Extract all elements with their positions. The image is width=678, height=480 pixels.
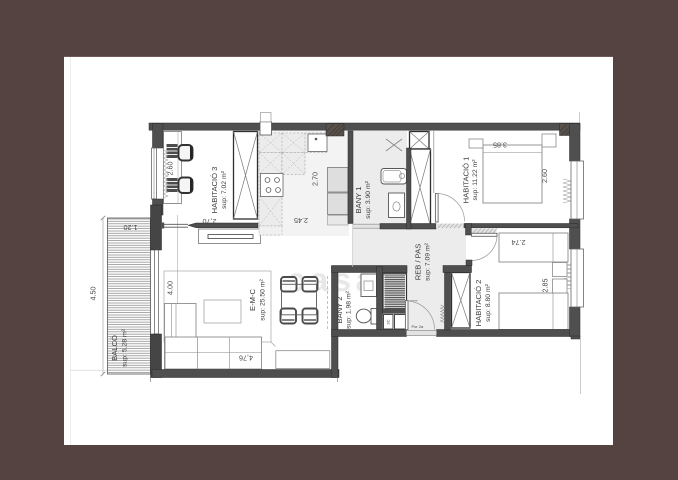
svg-text:1.20: 1.20 — [124, 223, 138, 232]
svg-text:HABITACIÓ 1: HABITACIÓ 1 — [462, 157, 471, 204]
svg-text:2.60: 2.60 — [540, 169, 549, 183]
svg-text:sup: 5.28 m²: sup: 5.28 m² — [122, 328, 129, 367]
svg-text:HABITACIÓ 2: HABITACIÓ 2 — [474, 280, 483, 327]
svg-text:REB / PAS: REB / PAS — [414, 244, 423, 281]
svg-text:E-M-C: E-M-C — [248, 289, 257, 311]
svg-text:sup: 7.02 m²: sup: 7.02 m² — [221, 170, 228, 209]
svg-text:sup: 7.09 m²: sup: 7.09 m² — [425, 242, 432, 281]
svg-text:4.00: 4.00 — [166, 281, 175, 295]
svg-text:2.74: 2.74 — [512, 238, 526, 247]
svg-text:sup: 8.80 m²: sup: 8.80 m² — [485, 283, 492, 322]
svg-text:4,76: 4,76 — [239, 353, 253, 362]
svg-text:HABITACIÓ 3: HABITACIÓ 3 — [210, 167, 219, 214]
svg-text:Por 2a: Por 2a — [412, 324, 425, 329]
svg-text:sup: 25.50 m²: sup: 25.50 m² — [260, 278, 267, 320]
svg-text:sup: 1.98 m²: sup: 1.98 m² — [346, 290, 353, 329]
svg-text:3C: 3C — [386, 319, 391, 324]
svg-text:4.50: 4.50 — [89, 287, 98, 301]
svg-text:sup: 3.90 m²: sup: 3.90 m² — [365, 180, 372, 219]
svg-text:2.85: 2.85 — [541, 279, 550, 293]
svg-text:3.85: 3.85 — [493, 140, 507, 149]
svg-text:sup: 11.22 m²: sup: 11.22 m² — [472, 159, 479, 201]
svg-text:BALCÓ: BALCÓ — [110, 335, 119, 361]
svg-text:BANY 1: BANY 1 — [354, 187, 363, 214]
svg-text:2.45: 2.45 — [294, 216, 308, 225]
svg-text:2.70: 2.70 — [311, 172, 320, 186]
